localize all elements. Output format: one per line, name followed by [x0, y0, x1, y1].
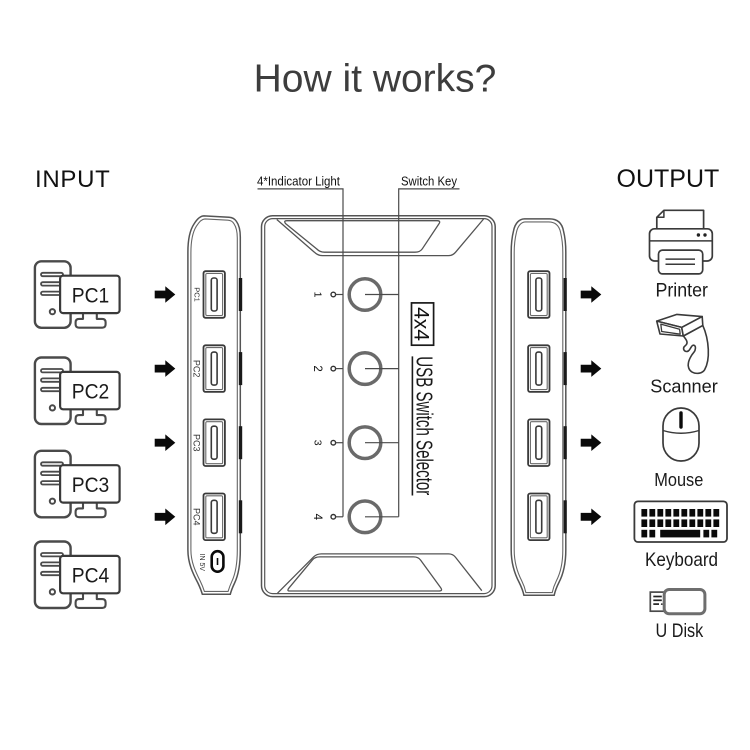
svg-text:INPUT: INPUT [35, 166, 111, 193]
svg-text:PC4: PC4 [192, 508, 202, 526]
svg-text:4*Indicator Light: 4*Indicator Light [257, 174, 340, 188]
svg-text:PC3: PC3 [192, 434, 202, 452]
svg-text:OUTPUT: OUTPUT [617, 165, 720, 193]
svg-text:1: 1 [311, 292, 323, 298]
svg-text:4: 4 [311, 514, 323, 521]
svg-text:How it works?: How it works? [254, 57, 497, 100]
svg-text:Keyboard: Keyboard [645, 549, 718, 571]
svg-text:USB Switch Selector: USB Switch Selector [412, 356, 438, 495]
svg-text:U Disk: U Disk [656, 621, 704, 642]
svg-text:PC1: PC1 [193, 287, 202, 302]
svg-text:Mouse: Mouse [654, 469, 703, 490]
svg-text:3: 3 [311, 440, 323, 446]
svg-text:Switch Key: Switch Key [401, 174, 458, 188]
svg-text:PC2: PC2 [192, 360, 202, 378]
svg-text:Scanner: Scanner [650, 376, 718, 396]
svg-text:Printer: Printer [655, 280, 708, 301]
svg-text:PC1: PC1 [72, 284, 110, 308]
svg-text:2: 2 [311, 365, 323, 371]
svg-text:PC3: PC3 [72, 473, 110, 497]
svg-text:PC4: PC4 [72, 564, 110, 588]
svg-text:IN 5V: IN 5V [198, 554, 205, 572]
svg-text:4x4: 4x4 [409, 307, 432, 341]
svg-text:PC2: PC2 [72, 380, 110, 404]
